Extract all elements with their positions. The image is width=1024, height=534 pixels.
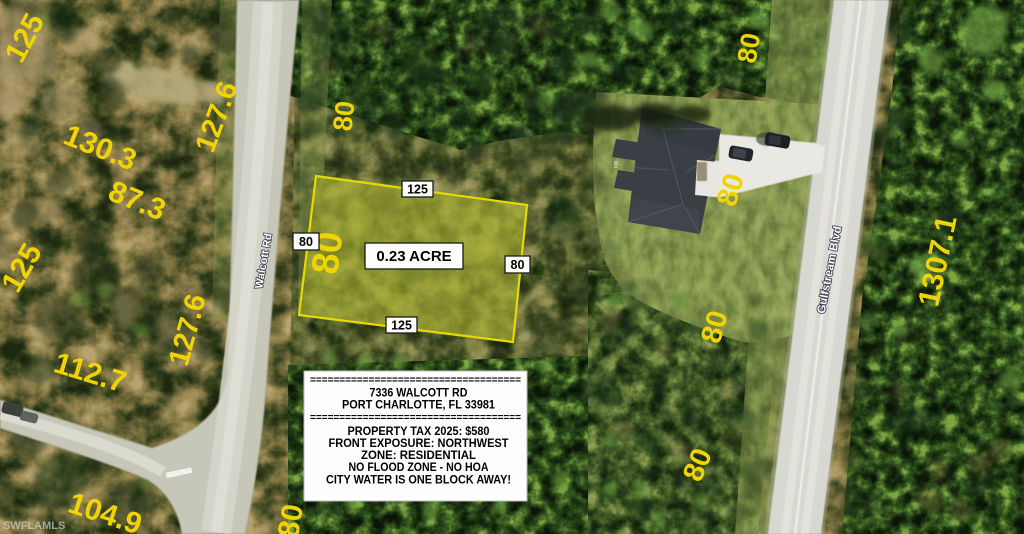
svg-text:125: 125 — [407, 183, 428, 197]
svg-text:==============================: ==================================== — [310, 411, 521, 423]
svg-text:80: 80 — [272, 502, 310, 534]
svg-text:80: 80 — [299, 235, 313, 249]
svg-text:80: 80 — [732, 31, 767, 66]
svg-text:80: 80 — [328, 99, 361, 132]
svg-text:CITY WATER IS ONE BLOCK AWAY!: CITY WATER IS ONE BLOCK AWAY! — [326, 472, 511, 486]
svg-text:PORT CHARLOTTE, FL 33981: PORT CHARLOTTE, FL 33981 — [342, 398, 495, 412]
svg-text:80: 80 — [511, 258, 525, 272]
svg-text:==============================: ==================================== — [310, 374, 521, 386]
svg-text:0.23 ACRE: 0.23 ACRE — [376, 248, 451, 265]
svg-text:125: 125 — [391, 319, 412, 333]
svg-text:SWFLAMLS: SWFLAMLS — [3, 520, 65, 532]
